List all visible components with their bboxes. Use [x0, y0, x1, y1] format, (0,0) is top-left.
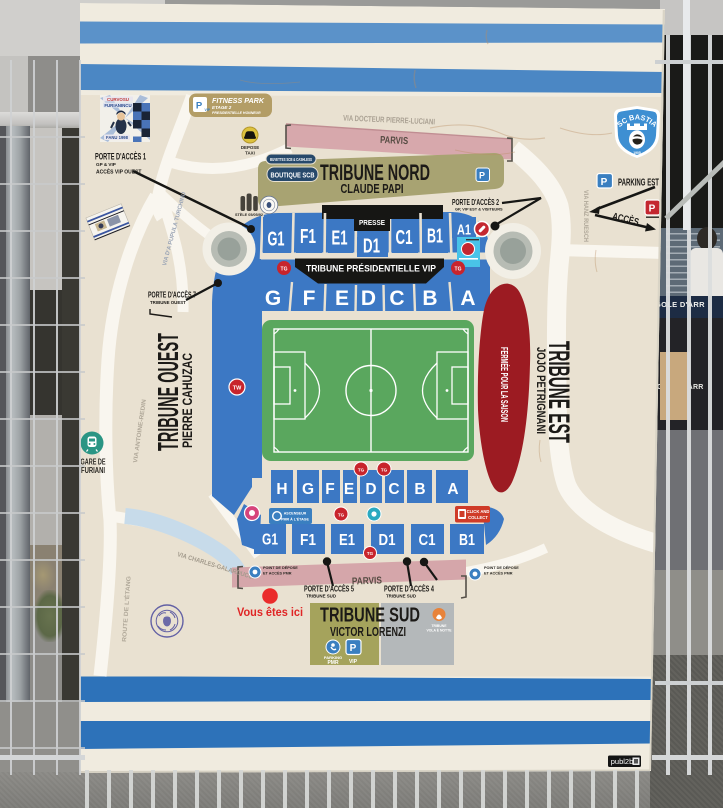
svg-text:P: P: [196, 101, 203, 112]
svg-text:F: F: [303, 287, 316, 310]
svg-text:C1: C1: [419, 532, 436, 549]
svg-text:PORTE D'ACCÈS 4: PORTE D'ACCÈS 4: [384, 584, 434, 594]
svg-text:G: G: [302, 481, 314, 498]
svg-text:F1: F1: [300, 226, 316, 248]
svg-text:TAXI: TAXI: [245, 151, 255, 156]
svg-text:H: H: [276, 481, 287, 498]
svg-text:P: P: [479, 171, 485, 181]
svg-text:GP & VIP: GP & VIP: [96, 162, 116, 167]
svg-text:E1: E1: [332, 228, 348, 250]
svg-text:ET ACCÈS PMR: ET ACCÈS PMR: [263, 571, 292, 576]
svg-text:A1: A1: [457, 222, 471, 239]
svg-text:B1: B1: [427, 226, 443, 248]
svg-text:COLLECT: COLLECT: [468, 515, 488, 520]
svg-text:BUVETTES SCB & CASHLESS: BUVETTES SCB & CASHLESS: [270, 157, 312, 162]
svg-text:F: F: [325, 481, 334, 498]
svg-text:P: P: [649, 204, 656, 215]
svg-text:A: A: [460, 287, 475, 310]
svg-text:ASCENSEUR: ASCENSEUR: [284, 512, 307, 516]
svg-text:GP, VIP EST & VISITEURS: GP, VIP EST & VISITEURS: [455, 207, 503, 212]
svg-text:TW: TW: [233, 386, 242, 392]
svg-text:PORTE D'ACCÈS 5: PORTE D'ACCÈS 5: [304, 584, 354, 594]
svg-text:PORTE D'ACCÈS 1: PORTE D'ACCÈS 1: [95, 152, 146, 162]
svg-text:CLAUDE PAPI: CLAUDE PAPI: [341, 181, 404, 196]
svg-text:E: E: [344, 481, 354, 498]
svg-text:F1: F1: [300, 532, 316, 549]
svg-text:D1: D1: [379, 532, 396, 549]
svg-text:TG: TG: [281, 267, 288, 273]
svg-text:B: B: [422, 287, 437, 310]
svg-text:TRIBUNE SUD: TRIBUNE SUD: [306, 594, 336, 599]
svg-text:B: B: [414, 481, 425, 498]
svg-text:PORTE D'ACCÈS 2: PORTE D'ACCÈS 2: [452, 197, 499, 207]
svg-text:BOUTIQUE SCB: BOUTIQUE SCB: [271, 173, 315, 180]
svg-text:TRIBUNE SUD: TRIBUNE SUD: [386, 594, 416, 599]
svg-text:DEPOSE: DEPOSE: [241, 145, 259, 150]
svg-text:D: D: [361, 287, 376, 310]
svg-text:TRIBUNE OUEST: TRIBUNE OUEST: [150, 300, 186, 305]
svg-text:PRESIDENTIELLE HONNEUR: PRESIDENTIELLE HONNEUR: [212, 111, 261, 115]
svg-text:C1: C1: [396, 227, 413, 249]
svg-text:VIP: VIP: [349, 659, 358, 665]
svg-text:TRIBUNE SUD: TRIBUNE SUD: [320, 605, 420, 627]
svg-text:TRIBUNE PRÉSIDENTIELLE VIP: TRIBUNE PRÉSIDENTIELLE VIP: [306, 264, 437, 275]
svg-text:P: P: [350, 643, 357, 654]
svg-text:PMR: PMR: [327, 660, 339, 666]
svg-text:C: C: [389, 287, 404, 310]
svg-text:D: D: [365, 481, 376, 498]
svg-text:C: C: [388, 481, 399, 498]
svg-text:TG: TG: [381, 468, 388, 473]
svg-text:FANU 1998: FANU 1998: [106, 135, 129, 140]
svg-text:POINT DE DÉPOSE: POINT DE DÉPOSE: [263, 565, 298, 570]
svg-text:PIERRE CAHUZAC: PIERRE CAHUZAC: [179, 353, 195, 448]
svg-text:FERMÉE POUR LA SAISON: FERMÉE POUR LA SAISON: [498, 347, 511, 422]
svg-text:TG: TG: [455, 267, 462, 273]
svg-text:FITNESS PARK: FITNESS PARK: [212, 96, 264, 105]
svg-text:D1: D1: [363, 236, 380, 258]
svg-text:FURIANINCU: FURIANINCU: [104, 103, 131, 108]
svg-text:G: G: [265, 287, 281, 310]
svg-text:ET ACCÈS PMR: ET ACCÈS PMR: [484, 571, 513, 576]
svg-text:B1: B1: [459, 532, 475, 549]
svg-text:JOJO PETRIGNANI: JOJO PETRIGNANI: [534, 347, 548, 434]
svg-text:POINT DE DÉPOSE: POINT DE DÉPOSE: [484, 565, 519, 570]
svg-text:PARVIS: PARVIS: [380, 135, 409, 147]
svg-text:1905: 1905: [633, 151, 641, 155]
svg-text:publ2b: publ2b: [611, 757, 634, 766]
svg-text:G1: G1: [268, 229, 285, 251]
svg-text:VOLA È NOTTE: VOLA È NOTTE: [427, 628, 453, 633]
svg-text:CURVOSU: CURVOSU: [107, 97, 129, 102]
svg-text:TRIBUNE: TRIBUNE: [431, 624, 447, 628]
svg-text:TG: TG: [367, 551, 374, 556]
svg-text:TG: TG: [358, 468, 365, 473]
svg-text:E1: E1: [339, 532, 355, 549]
svg-text:P: P: [601, 177, 608, 188]
svg-text:G1: G1: [262, 532, 278, 549]
svg-text:Vous êtes ici: Vous êtes ici: [237, 607, 303, 619]
svg-text:TG: TG: [338, 513, 345, 518]
svg-text:STÈLE 05/05/92: STÈLE 05/05/92: [235, 212, 263, 217]
svg-text:VIP: VIP: [205, 108, 211, 112]
svg-text:VICTOR LORENZI: VICTOR LORENZI: [330, 625, 406, 639]
svg-text:PRESSE: PRESSE: [359, 220, 385, 227]
svg-text:VIA HANZ RUESCH: VIA HANZ RUESCH: [582, 190, 588, 242]
svg-text:CLICK AND: CLICK AND: [467, 509, 490, 514]
svg-text:PMR À L'ÉTAGE: PMR À L'ÉTAGE: [281, 517, 309, 522]
svg-text:PARVIS: PARVIS: [352, 575, 383, 587]
svg-text:A: A: [447, 481, 458, 498]
svg-text:E: E: [335, 287, 349, 310]
svg-text:ETAGE 2: ETAGE 2: [212, 105, 232, 110]
